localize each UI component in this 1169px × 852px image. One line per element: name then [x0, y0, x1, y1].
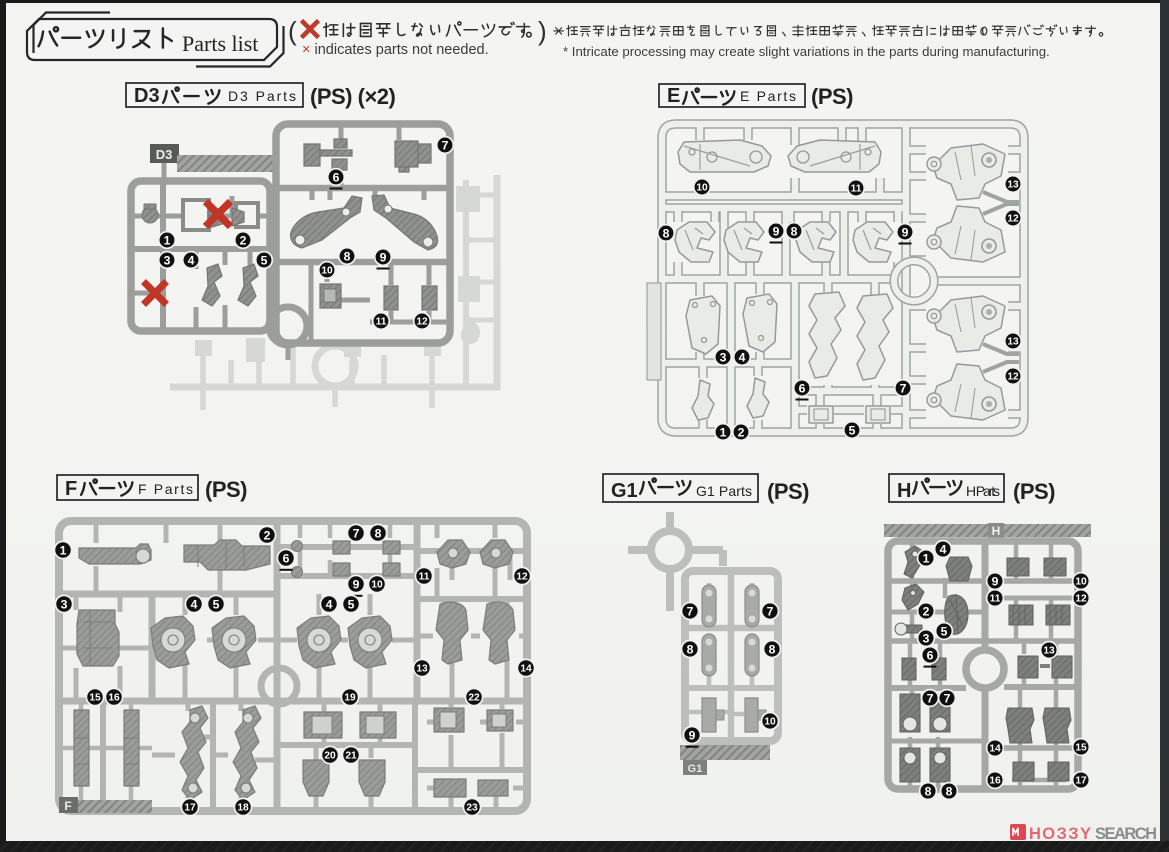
svg-text:1: 1 [923, 551, 930, 565]
svg-text:G1: G1 [611, 480, 638, 502]
svg-text:7: 7 [353, 526, 360, 540]
svg-text:H: H [992, 524, 1001, 538]
svg-text:6: 6 [333, 170, 340, 184]
svg-text:8: 8 [925, 784, 932, 798]
svg-text:4: 4 [326, 597, 333, 611]
svg-text:2: 2 [240, 233, 247, 247]
svg-text:H Parts: H Parts [966, 483, 1000, 499]
svg-text:11: 11 [419, 572, 430, 583]
svg-text:13: 13 [1007, 180, 1019, 191]
svg-text:10: 10 [696, 183, 708, 194]
svg-text:4: 4 [940, 542, 947, 556]
svg-text:7: 7 [944, 691, 951, 705]
svg-text:8: 8 [344, 249, 351, 263]
svg-text:3: 3 [164, 253, 171, 267]
svg-text:5: 5 [213, 597, 220, 611]
svg-text:7: 7 [442, 138, 449, 152]
svg-text:11: 11 [990, 594, 1001, 605]
svg-text:3: 3 [720, 350, 727, 364]
svg-text:): ) [538, 16, 547, 46]
svg-text:11: 11 [851, 184, 862, 195]
svg-text:6: 6 [927, 648, 934, 662]
svg-text:SEARCH: SEARCH [1095, 825, 1157, 843]
svg-text:7: 7 [687, 604, 694, 618]
svg-text:1: 1 [60, 543, 67, 557]
svg-text:14: 14 [520, 664, 532, 675]
svg-text:(PS): (PS) [811, 84, 853, 109]
svg-text:13: 13 [416, 664, 428, 675]
svg-text:9: 9 [380, 250, 387, 264]
svg-text:16: 16 [108, 693, 120, 704]
svg-text:1: 1 [164, 233, 171, 247]
svg-text:12: 12 [1007, 372, 1019, 383]
svg-text:15: 15 [89, 693, 101, 704]
svg-text:9: 9 [773, 224, 780, 238]
svg-text:9: 9 [689, 728, 696, 742]
svg-text:20: 20 [324, 751, 336, 762]
svg-text:D3 Parts: D3 Parts [228, 88, 296, 104]
svg-text:4: 4 [739, 350, 746, 364]
svg-text:F: F [64, 799, 71, 813]
svg-text:21: 21 [345, 751, 357, 762]
svg-text:(PS): (PS) [1013, 479, 1055, 504]
svg-text:9: 9 [353, 577, 360, 591]
svg-text:5: 5 [261, 253, 268, 267]
svg-text:3: 3 [61, 597, 68, 611]
svg-text:D3: D3 [134, 85, 160, 107]
svg-text:9: 9 [902, 225, 909, 239]
svg-text:D3: D3 [156, 147, 173, 162]
svg-text:E: E [667, 85, 680, 107]
svg-text:E Parts: E Parts [740, 88, 796, 104]
svg-text:4: 4 [188, 253, 195, 267]
svg-text:5: 5 [849, 423, 856, 437]
svg-text:7: 7 [927, 691, 934, 705]
svg-text:F: F [65, 478, 77, 500]
svg-text:18: 18 [237, 803, 249, 814]
svg-text:8: 8 [375, 526, 382, 540]
svg-text:4: 4 [191, 597, 198, 611]
svg-text:8: 8 [769, 642, 776, 656]
svg-text:G1 Parts: G1 Parts [696, 483, 752, 499]
svg-text:* Intricate processing may cre: * Intricate processing may create slight… [563, 44, 1050, 59]
svg-text:9: 9 [992, 574, 999, 588]
svg-text:14: 14 [989, 744, 1001, 755]
svg-text:1: 1 [720, 425, 727, 439]
svg-text:7: 7 [767, 604, 774, 618]
svg-text:19: 19 [344, 693, 356, 704]
svg-text:5: 5 [941, 624, 948, 638]
svg-text:G1: G1 [688, 763, 703, 775]
svg-text:23: 23 [466, 803, 478, 814]
svg-text:17: 17 [1075, 776, 1087, 787]
svg-text:13: 13 [1007, 337, 1019, 348]
svg-text:17: 17 [184, 803, 196, 814]
svg-text:3: 3 [923, 631, 930, 645]
svg-text:12: 12 [1075, 594, 1087, 605]
svg-text:22: 22 [468, 693, 480, 704]
svg-text:2: 2 [738, 425, 745, 439]
svg-text:F Parts: F Parts [138, 481, 193, 497]
svg-text:8: 8 [663, 226, 670, 240]
svg-text:10: 10 [764, 717, 776, 728]
svg-text:12: 12 [416, 317, 428, 328]
svg-text:(PS): (PS) [205, 477, 247, 502]
svg-text:8: 8 [791, 224, 798, 238]
svg-text:(: ( [288, 16, 297, 46]
svg-text:6: 6 [799, 381, 806, 395]
svg-text:12: 12 [516, 572, 528, 583]
svg-text:H: H [897, 480, 911, 502]
svg-text:(PS) (×2): (PS) (×2) [310, 84, 396, 109]
svg-text:× indicates parts not needed.: × indicates parts not needed. [302, 42, 489, 58]
svg-text:7: 7 [900, 381, 907, 395]
svg-text:10: 10 [1075, 577, 1087, 588]
svg-text:8: 8 [946, 784, 953, 798]
svg-text:2: 2 [264, 528, 271, 542]
svg-text:5: 5 [348, 597, 355, 611]
svg-text:10: 10 [371, 580, 383, 591]
svg-text:Parts list: Parts list [182, 31, 258, 56]
svg-text:16: 16 [989, 776, 1001, 787]
svg-text:8: 8 [687, 642, 694, 656]
svg-text:6: 6 [283, 551, 290, 565]
svg-text:13: 13 [1043, 646, 1055, 657]
svg-text:15: 15 [1075, 743, 1087, 754]
svg-text:2: 2 [923, 604, 930, 618]
svg-text:HOЗЗY: HOЗЗY [1029, 825, 1091, 843]
svg-text:12: 12 [1007, 214, 1019, 225]
svg-text:(PS): (PS) [767, 479, 809, 504]
svg-text:11: 11 [376, 317, 387, 328]
svg-text:10: 10 [321, 266, 333, 277]
